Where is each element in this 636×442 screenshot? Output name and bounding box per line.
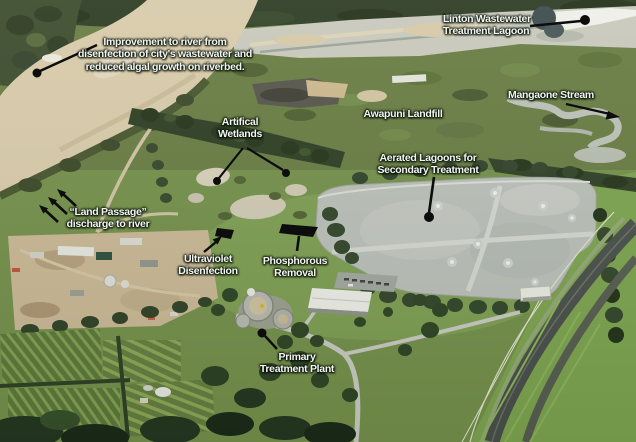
phosphorous-building-silhouette [279, 224, 318, 237]
leader-aerated [425, 177, 435, 222]
label-mangaone-stream: Mangaone Stream [503, 89, 599, 101]
arrow-ultraviolet [204, 228, 234, 252]
label-phosphorous-removal: Phosphorous Removal [247, 255, 343, 280]
leader-phosphorous [279, 224, 318, 251]
uv-building-silhouette [215, 228, 234, 239]
label-primary-treatment-plant: Primary Treatment Plant [249, 351, 345, 376]
label-land-passage: “Land Passage” discharge to river [60, 206, 156, 231]
label-linton-lagoon: Linton Wastewater Treatment Lagoon [443, 13, 543, 38]
label-ultraviolet-disinfection: Ultraviolet Disenfection [160, 253, 256, 278]
label-aerated-lagoons: Aerated Lagoons for Secondary Treatment [350, 152, 506, 177]
leader-wetlands [214, 148, 290, 185]
label-artificial-wetlands: Artifical Wetlands [195, 116, 285, 141]
annotated-aerial-photo: Improvement to river from disenfection o… [0, 0, 636, 442]
leader-primary [258, 329, 277, 349]
arrow-mangaone [566, 104, 620, 120]
label-awapuni-landfill: Awapuni Landfill [355, 108, 451, 120]
label-improvement-note: Improvement to river from disenfection o… [70, 36, 260, 73]
